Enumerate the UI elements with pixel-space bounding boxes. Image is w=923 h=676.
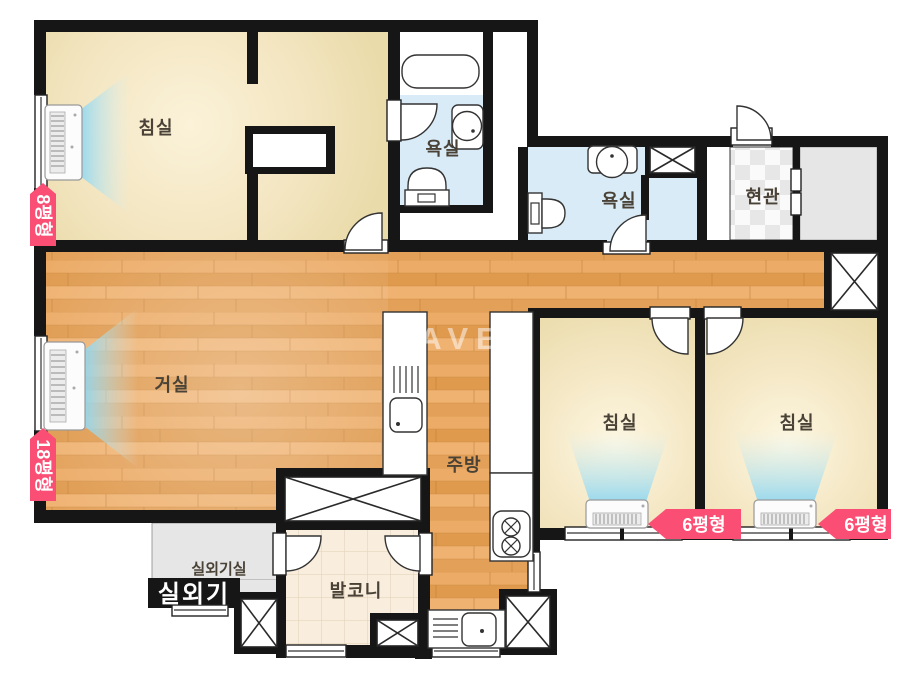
shaft-right: [824, 246, 885, 317]
ac-unit-bedroom-right2: [754, 500, 816, 528]
door-entrance: [731, 106, 772, 145]
label-living: 거실: [154, 375, 189, 395]
shaft-bottom-left: [234, 592, 284, 654]
window-balcony-bottom: [286, 645, 346, 657]
kitchen-sink-left: [390, 398, 422, 432]
utility-sink: [462, 613, 496, 646]
badge-bedroom-main-label: 8평형: [33, 194, 53, 237]
label-kitchen: 주방: [446, 455, 481, 475]
floorplan-svg: 8평형 18평형 6평형 6평형 침실 욕실 욕실 현관 거실 주방 침실 침실…: [0, 0, 923, 676]
ac-unit-living: [44, 342, 85, 430]
storage-room-floor: [800, 147, 877, 240]
badge-bedroom-right1: 6평형: [648, 509, 741, 539]
ac-unit-bedroom-main: [45, 105, 82, 180]
utility-counter-bottom: [428, 610, 505, 648]
label-entrance: 현관: [745, 187, 780, 207]
shaft-kitchen-bottom: [499, 589, 557, 655]
badge-bedroom-main: 8평형: [30, 183, 56, 246]
naver-watermark: NAVER: [389, 321, 535, 356]
outdoor-unit-room-floor-ext: [240, 580, 280, 594]
floorplan-page: 8평형 18평형 6평형 6평형 침실 욕실 욕실 현관 거실 주방 침실 침실…: [0, 0, 923, 676]
badge-bedroom-right2-label: 6평형: [844, 515, 887, 535]
shaft-balcony-corner: [370, 613, 425, 653]
label-bedroom-right1: 침실: [602, 413, 637, 433]
closet-niche: [253, 134, 326, 167]
label-outdoor-unit: 실외기: [158, 581, 230, 608]
toilet-master: [405, 168, 449, 206]
shaft-bath-common: [645, 142, 700, 178]
label-balcony: 발코니: [330, 581, 383, 601]
label-bath-common: 욕실: [601, 191, 636, 211]
label-outdoor-unit-room: 실외기실: [191, 560, 246, 578]
badge-bedroom-right1-label: 6평형: [682, 515, 725, 535]
hallway-floor: [388, 250, 824, 312]
sink-common: [588, 146, 637, 178]
badge-living-label: 18평형: [33, 439, 53, 492]
closet-above-balcony: [276, 468, 430, 530]
label-bedroom-main: 침실: [138, 118, 173, 138]
bathtub: [402, 55, 479, 88]
badge-living: 18평형: [30, 428, 56, 501]
label-bath-master: 욕실: [425, 139, 460, 159]
ac-unit-bedroom-right1: [586, 500, 648, 528]
label-bedroom-right2: 침실: [779, 413, 814, 433]
